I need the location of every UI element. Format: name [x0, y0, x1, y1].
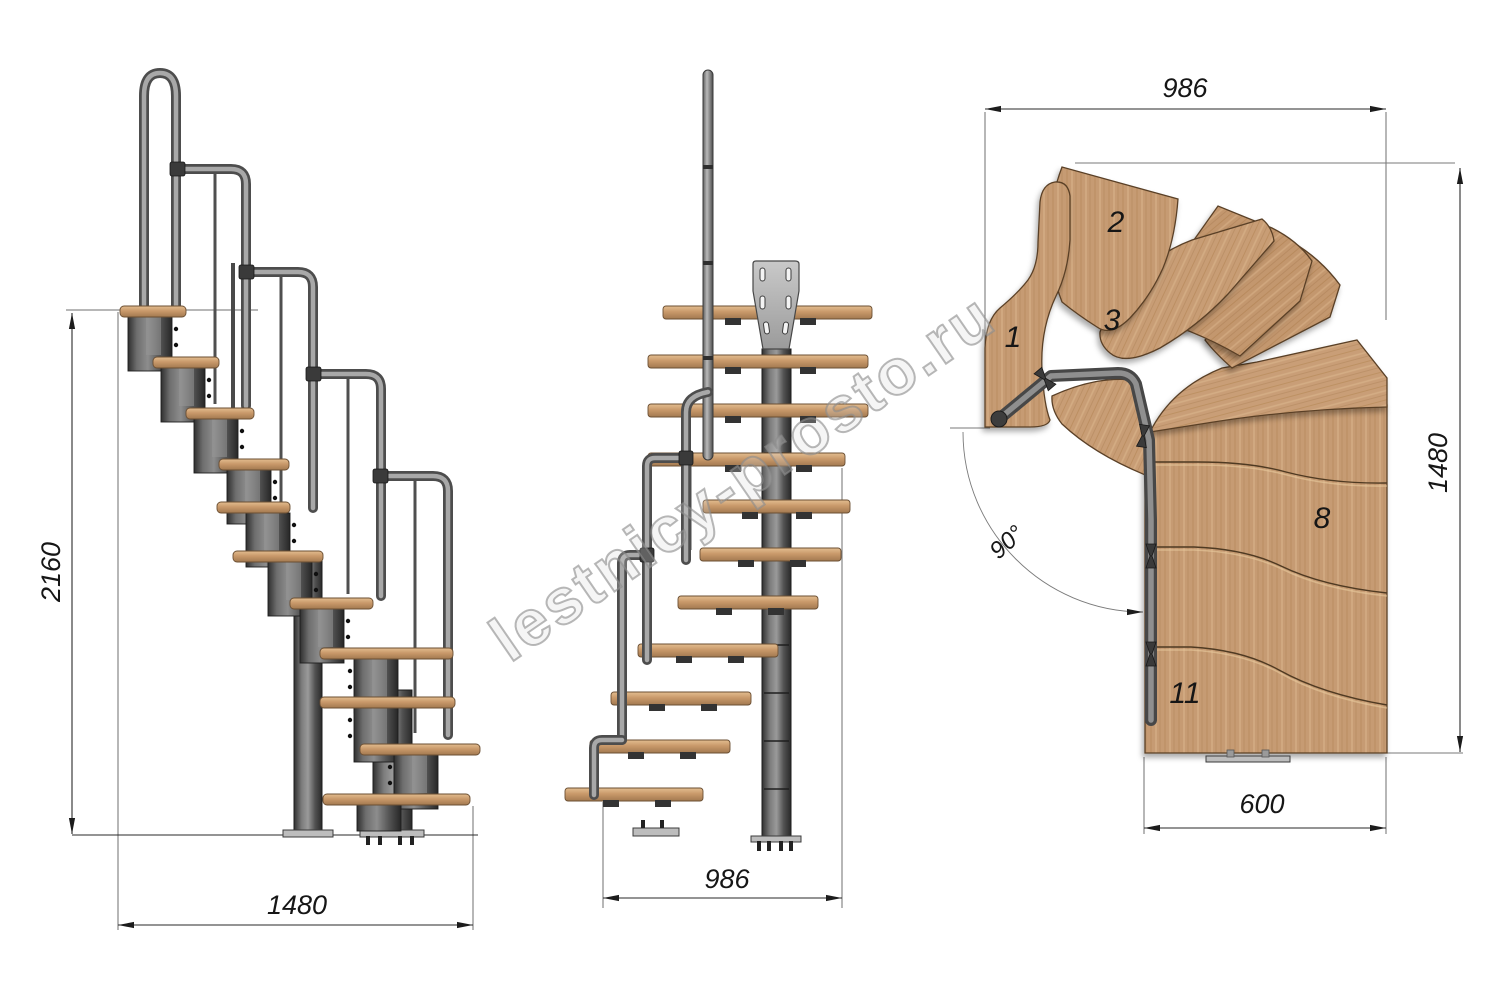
tread-row — [611, 692, 751, 711]
plan-depth-dimension: 1480 — [1423, 433, 1453, 493]
plan-width-dimension: 986 — [1162, 73, 1208, 103]
plan-flight-width-dimension: 600 — [1239, 789, 1284, 819]
side-view: 2160 1480 — [36, 73, 480, 930]
front-newel-pole — [703, 70, 713, 460]
watermark-text: lestnicy-prosto.ru — [477, 279, 1008, 675]
tread-number-3: 3 — [1104, 304, 1121, 337]
staircase-technical-drawing: 2160 1480 — [0, 0, 1500, 987]
plan-base-plate — [1206, 756, 1290, 762]
tread-number-8: 8 — [1314, 502, 1331, 535]
tread-number-11: 11 — [1169, 677, 1200, 710]
tread-row — [638, 644, 778, 663]
side-run-dimension: 1480 — [267, 890, 327, 920]
plan-treads — [985, 167, 1387, 762]
tread-row — [678, 596, 818, 615]
side-height-dimension: 2160 — [36, 542, 66, 603]
front-width-dimension: 986 — [704, 864, 750, 894]
tread-number-2: 2 — [1107, 206, 1125, 239]
tread-row — [565, 788, 703, 807]
angle-label: 90° — [984, 520, 1029, 565]
plan-view: 986 1480 600 90° — [950, 73, 1463, 834]
front-mounting-plate — [753, 261, 799, 349]
